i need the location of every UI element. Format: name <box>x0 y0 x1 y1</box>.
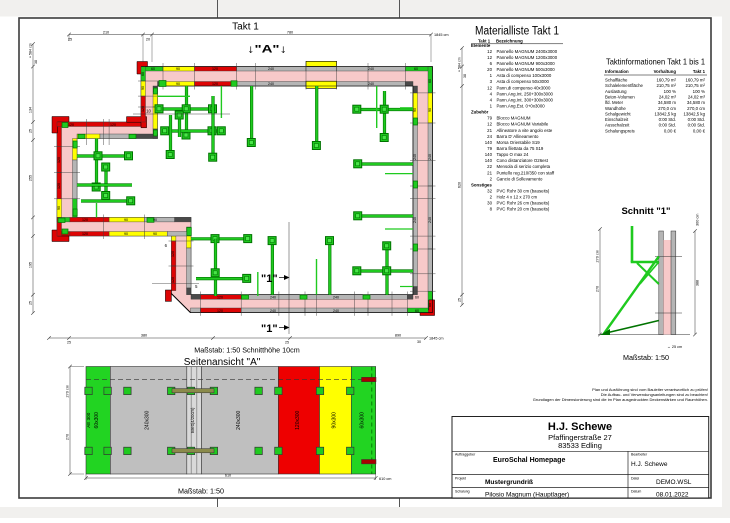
svg-text:90: 90 <box>428 108 432 112</box>
svg-text:0:00 Std.: 0:00 Std. <box>659 123 676 128</box>
svg-text:79: 79 <box>487 146 492 151</box>
svg-text:25: 25 <box>67 341 71 345</box>
svg-text:890: 890 <box>395 334 401 338</box>
svg-text:120: 120 <box>82 218 88 222</box>
svg-text:240: 240 <box>428 217 432 223</box>
svg-text:388: 388 <box>696 280 700 286</box>
svg-text:60: 60 <box>141 72 145 76</box>
svg-text:Wandhöhe: Wandhöhe <box>605 106 626 111</box>
svg-text:↓"A"↓: ↓"A"↓ <box>247 44 287 56</box>
svg-text:90: 90 <box>153 218 157 222</box>
svg-text:12: 12 <box>487 85 492 90</box>
svg-text:Sonstiges: Sonstiges <box>471 182 492 187</box>
svg-text:270: 270 <box>66 434 70 440</box>
svg-text:EuroSchal Homepage: EuroSchal Homepage <box>493 457 565 464</box>
svg-text:38: 38 <box>463 74 467 78</box>
svg-text:Projekt: Projekt <box>455 477 466 481</box>
svg-text:100 %: 100 % <box>664 89 676 94</box>
svg-text:Datum: Datum <box>631 489 641 493</box>
svg-text:120: 120 <box>82 232 88 236</box>
svg-text:Schalelementfläche: Schalelementfläche <box>605 83 643 88</box>
svg-text:120: 120 <box>212 82 218 86</box>
svg-text:Holz 4 x 12 x 270 cm: Holz 4 x 12 x 270 cm <box>497 195 538 200</box>
svg-text:25: 25 <box>68 37 72 41</box>
svg-text:270 cm: 270 cm <box>596 250 600 262</box>
svg-text:90: 90 <box>413 108 417 112</box>
svg-text:300 cm: 300 cm <box>696 214 700 226</box>
svg-text:20: 20 <box>146 37 150 41</box>
svg-text:34,580 m: 34,580 m <box>687 100 705 105</box>
svg-text:140: 140 <box>485 158 493 163</box>
svg-text:120x300: 120x300 <box>295 410 301 429</box>
svg-text:25: 25 <box>458 298 462 302</box>
svg-text:Auslastung: Auslastung <box>605 89 627 94</box>
svg-text:240: 240 <box>270 296 276 300</box>
svg-text:Beton-Volumen: Beton-Volumen <box>605 95 635 100</box>
svg-text:210,75 m²: 210,75 m² <box>656 83 676 88</box>
svg-text:AE 300: AE 300 <box>86 412 91 428</box>
svg-text:120: 120 <box>141 106 145 112</box>
svg-text:Barra filettata da 75 S19: Barra filettata da 75 S19 <box>497 146 544 151</box>
svg-text:90: 90 <box>176 82 180 86</box>
svg-text:240: 240 <box>333 296 339 300</box>
svg-text:Bearbeiter: Bearbeiter <box>631 453 648 457</box>
svg-text:120: 120 <box>217 309 223 313</box>
svg-text:Gancio di Sollevamento: Gancio di Sollevamento <box>497 176 543 181</box>
svg-text:120: 120 <box>57 157 61 163</box>
svg-text:False: False <box>191 0 200 1</box>
svg-text:12: 12 <box>487 122 492 127</box>
svg-text:240: 240 <box>268 67 274 71</box>
svg-text:120: 120 <box>57 183 61 189</box>
svg-text:Bezeichnung: Bezeichnung <box>496 38 523 43</box>
svg-text:Zubehör: Zubehör <box>471 110 489 115</box>
svg-text:25: 25 <box>29 301 33 305</box>
svg-text:20: 20 <box>487 67 492 72</box>
svg-text:240: 240 <box>333 309 339 313</box>
svg-text:Takt 1: Takt 1 <box>232 22 259 33</box>
svg-text:610: 610 <box>225 474 231 478</box>
svg-text:Blocco MAGNUM Variabile: Blocco MAGNUM Variabile <box>497 122 549 127</box>
svg-text:140: 140 <box>485 152 493 157</box>
svg-text:195: 195 <box>29 262 33 268</box>
svg-text:Schalungspreis: Schalungspreis <box>605 128 636 133</box>
svg-text:Pilosio Magnum (Hauptlager): Pilosio Magnum (Hauptlager) <box>485 492 569 499</box>
svg-text:Schalfläche: Schalfläche <box>605 78 628 83</box>
svg-text:120: 120 <box>212 67 218 71</box>
svg-text:Tappo O max 24: Tappo O max 24 <box>497 152 529 157</box>
svg-text:Maßstab: 1:50: Maßstab: 1:50 <box>623 353 669 362</box>
svg-text:30: 30 <box>417 340 421 344</box>
svg-text:PVC Rohr 20 cm (bauseits): PVC Rohr 20 cm (bauseits) <box>497 207 550 212</box>
svg-text:lfd. Meter: lfd. Meter <box>605 100 624 105</box>
svg-text:270: 270 <box>596 286 600 292</box>
svg-text:1845 cm: 1845 cm <box>429 337 444 341</box>
svg-text:Takt 1: Takt 1 <box>693 69 706 74</box>
svg-text:Schalgewicht: Schalgewicht <box>605 111 631 116</box>
svg-text:DEMO.WSL: DEMO.WSL <box>656 479 692 486</box>
svg-text:610 cm: 610 cm <box>379 477 391 481</box>
svg-text:Information: Information <box>605 69 629 74</box>
svg-text:60: 60 <box>428 79 432 83</box>
svg-text:Mensola di serizio completa: Mensola di serizio completa <box>497 164 551 169</box>
svg-text:Datei: Datei <box>631 477 639 481</box>
svg-text:90: 90 <box>57 206 61 210</box>
svg-text:210,75 m²: 210,75 m² <box>685 83 705 88</box>
svg-text:Pann.di compenso 40x3000: Pann.di compenso 40x3000 <box>497 85 551 90</box>
svg-text:240: 240 <box>368 82 374 86</box>
svg-text:380: 380 <box>141 334 147 338</box>
svg-text:60x300: 60x300 <box>360 412 366 429</box>
svg-text:38: 38 <box>34 60 38 64</box>
svg-text:PVC Rohr 26 cm (bauseits): PVC Rohr 26 cm (bauseits) <box>497 201 550 206</box>
svg-text:0,00 €: 0,00 € <box>664 128 677 133</box>
svg-text:13842,5 kg: 13842,5 kg <box>684 111 706 116</box>
svg-text:60x300: 60x300 <box>94 412 100 429</box>
svg-text:25: 25 <box>29 129 33 133</box>
svg-text:30: 30 <box>487 201 492 206</box>
svg-text:120: 120 <box>110 123 116 127</box>
svg-text:08.01.2022: 08.01.2022 <box>656 492 689 499</box>
svg-text:0:00 Std.: 0:00 Std. <box>688 123 705 128</box>
svg-text:21: 21 <box>487 170 492 175</box>
svg-text:Mustergrundriß: Mustergrundriß <box>485 479 533 486</box>
svg-text:21: 21 <box>487 128 492 133</box>
svg-text:620: 620 <box>458 182 462 188</box>
svg-text:Auftraggeber: Auftraggeber <box>455 453 476 457</box>
svg-text:1845 cm: 1845 cm <box>434 33 449 37</box>
svg-text:240: 240 <box>413 154 417 160</box>
svg-text:Puntello reg.210/350 con staff: Puntello reg.210/350 con staff <box>497 170 555 175</box>
svg-text:34,580 m: 34,580 m <box>658 100 676 105</box>
svg-text:83533 Edling: 83533 Edling <box>558 441 602 450</box>
svg-text:Ausschalzeit: Ausschalzeit <box>605 123 630 128</box>
svg-text:Asta di compenso 100x3000: Asta di compenso 100x3000 <box>497 73 552 78</box>
svg-text:Pann.Ang.Int. 250+300x3000: Pann.Ang.Int. 250+300x3000 <box>497 91 554 96</box>
svg-text:False: False <box>96 0 105 1</box>
svg-text:120: 120 <box>68 123 74 127</box>
svg-text:» 584 cm: » 584 cm <box>29 43 33 58</box>
svg-text:120: 120 <box>171 277 175 283</box>
svg-text:Pannello MAGNUM 2400x3000: Pannello MAGNUM 2400x3000 <box>497 49 558 54</box>
svg-text:H.J. Schewe: H.J. Schewe <box>548 421 612 433</box>
svg-text:» 584 cm: » 584 cm <box>458 57 462 72</box>
svg-text:PVC Rohr 30 cm (bauseits): PVC Rohr 30 cm (bauseits) <box>497 189 550 194</box>
svg-text:Maßstab: 1:50: Maßstab: 1:50 <box>178 487 224 496</box>
svg-text:12: 12 <box>487 49 492 54</box>
svg-text:240x300: 240x300 <box>236 410 242 429</box>
svg-text:240: 240 <box>413 217 417 223</box>
svg-text:240x300: 240x300 <box>145 410 151 429</box>
svg-text:Blocco MAGNUM: Blocco MAGNUM <box>497 116 531 121</box>
svg-text:240: 240 <box>368 67 374 71</box>
svg-text:100 %: 100 % <box>693 89 705 94</box>
svg-text:24: 24 <box>487 134 492 139</box>
svg-text:160,79 m²: 160,79 m² <box>685 78 705 83</box>
svg-text:Morsa Orientabile S19: Morsa Orientabile S19 <box>497 140 541 145</box>
svg-text:240: 240 <box>268 82 274 86</box>
svg-text:160,79 m²: 160,79 m² <box>656 78 676 83</box>
svg-text:Allineatore a vite angolo este: Allineatore a vite angolo este <box>497 128 553 133</box>
svg-text:12: 12 <box>487 55 492 60</box>
svg-text:780: 780 <box>287 30 293 34</box>
svg-text:Cono distanziatore O26est: Cono distanziatore O26est <box>497 158 549 163</box>
svg-text:90: 90 <box>124 218 128 222</box>
svg-text:140: 140 <box>485 140 493 145</box>
svg-text:32: 32 <box>487 189 492 194</box>
svg-text:134: 134 <box>29 107 33 113</box>
svg-text:Pann.Ang.Est. 0+0x3000: Pann.Ang.Est. 0+0x3000 <box>497 104 546 109</box>
svg-text:60: 60 <box>151 67 155 71</box>
svg-text:Materialliste Takt 1: Materialliste Takt 1 <box>475 26 559 38</box>
svg-text:60: 60 <box>415 309 419 313</box>
svg-text:255: 255 <box>29 175 33 181</box>
svg-text:120: 120 <box>171 251 175 257</box>
svg-text:90: 90 <box>141 86 145 90</box>
svg-text:13842,5 kg: 13842,5 kg <box>655 111 677 116</box>
svg-text:Schnitt "1": Schnitt "1" <box>621 206 670 217</box>
svg-text:240: 240 <box>428 154 432 160</box>
svg-text:Einschalzeit: Einschalzeit <box>605 117 629 122</box>
svg-text:Maßstab: 1:50 Schnitthöhe 10: Maßstab: 1:50 Schnitthöhe 10cm <box>194 346 299 355</box>
svg-text:90x300: 90x300 <box>331 412 337 429</box>
svg-text:22: 22 <box>487 164 492 169</box>
svg-text:"1": "1" <box>261 323 278 335</box>
svg-text:0:00 Std.: 0:00 Std. <box>688 117 705 122</box>
svg-text:270,0 cm: 270,0 cm <box>687 106 705 111</box>
svg-text:90: 90 <box>176 67 180 71</box>
svg-text:Barra D' Allineamento: Barra D' Allineamento <box>497 134 539 139</box>
svg-text:10: 10 <box>146 109 151 114</box>
svg-text:24,02 m³: 24,02 m³ <box>659 95 677 100</box>
svg-text:210: 210 <box>103 30 109 34</box>
svg-text:Vorhaltung: Vorhaltung <box>654 69 677 74</box>
svg-text:60: 60 <box>414 67 418 71</box>
svg-text:H.J. Schewe: H.J. Schewe <box>631 461 668 468</box>
svg-text:Taktinformationen Takt 1 bis: Taktinformationen Takt 1 bis 1 <box>606 57 705 67</box>
svg-text:0:00 Std.: 0:00 Std. <box>659 117 676 122</box>
svg-text:Asta di compenso 50x3000: Asta di compenso 50x3000 <box>497 79 550 84</box>
svg-text:60: 60 <box>415 296 419 300</box>
svg-text:Elemente: Elemente <box>471 43 491 48</box>
svg-text:25: 25 <box>285 341 289 345</box>
svg-text:79: 79 <box>487 116 492 121</box>
svg-text:90: 90 <box>153 232 157 236</box>
svg-text:0,00 €: 0,00 € <box>693 128 706 133</box>
svg-text:240: 240 <box>270 309 276 313</box>
svg-text:Pann.Ang.Int. 300+300x3000: Pann.Ang.Int. 300+300x3000 <box>497 97 554 102</box>
svg-text:Grundlagen der Dimensionierung: Grundlagen der Dimensionierung sind die … <box>533 397 708 402</box>
svg-text:Pannello MAGNUM 900x3000: Pannello MAGNUM 900x3000 <box>497 61 556 66</box>
svg-text:24,02 m³: 24,02 m³ <box>688 95 706 100</box>
svg-text:↔ 25 cm: ↔ 25 cm <box>667 345 682 349</box>
svg-text:Brett(4/20cm): Brett(4/20cm) <box>190 407 195 433</box>
svg-text:"1": "1" <box>261 273 278 285</box>
svg-text:270 cm: 270 cm <box>66 385 70 397</box>
svg-text:Pannello MAGNUM 500x3000: Pannello MAGNUM 500x3000 <box>497 67 556 72</box>
svg-text:90: 90 <box>124 232 128 236</box>
svg-text:60: 60 <box>428 303 432 307</box>
svg-text:270,0 cm: 270,0 cm <box>658 106 676 111</box>
svg-text:Pannello MAGNUM 1200x3000: Pannello MAGNUM 1200x3000 <box>497 55 558 60</box>
svg-text:Schalung: Schalung <box>455 489 470 493</box>
svg-text:120: 120 <box>217 296 223 300</box>
